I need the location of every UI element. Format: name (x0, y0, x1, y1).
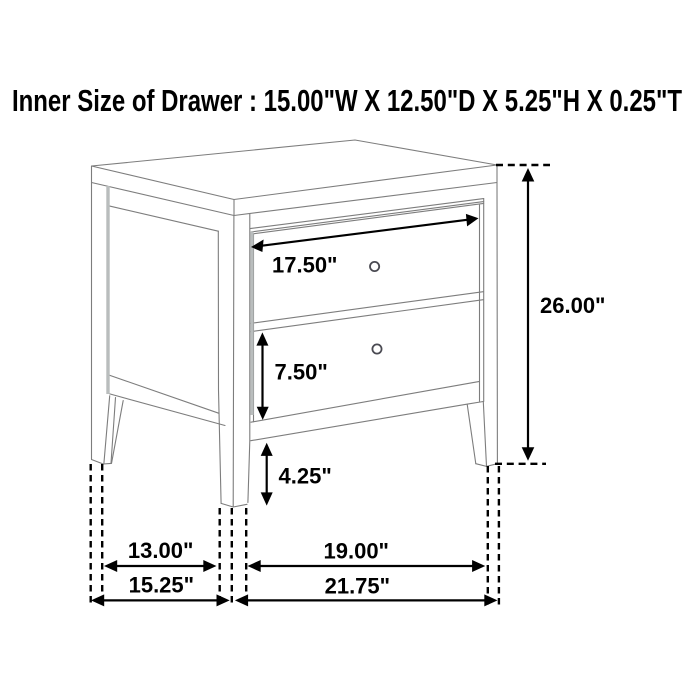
svg-text:13.00": 13.00" (128, 538, 193, 563)
svg-text:Inner Size of Drawer : 15.00"W: Inner Size of Drawer : 15.00"W X 12.50"D… (12, 85, 682, 118)
svg-text:26.00": 26.00" (540, 293, 605, 318)
svg-text:19.00": 19.00" (324, 538, 389, 563)
svg-text:15.25": 15.25" (129, 573, 194, 598)
svg-text:4.25": 4.25" (279, 464, 332, 489)
svg-text:21.75": 21.75" (325, 574, 390, 599)
svg-text:7.50": 7.50" (275, 360, 328, 385)
svg-text:17.50": 17.50" (272, 253, 337, 278)
